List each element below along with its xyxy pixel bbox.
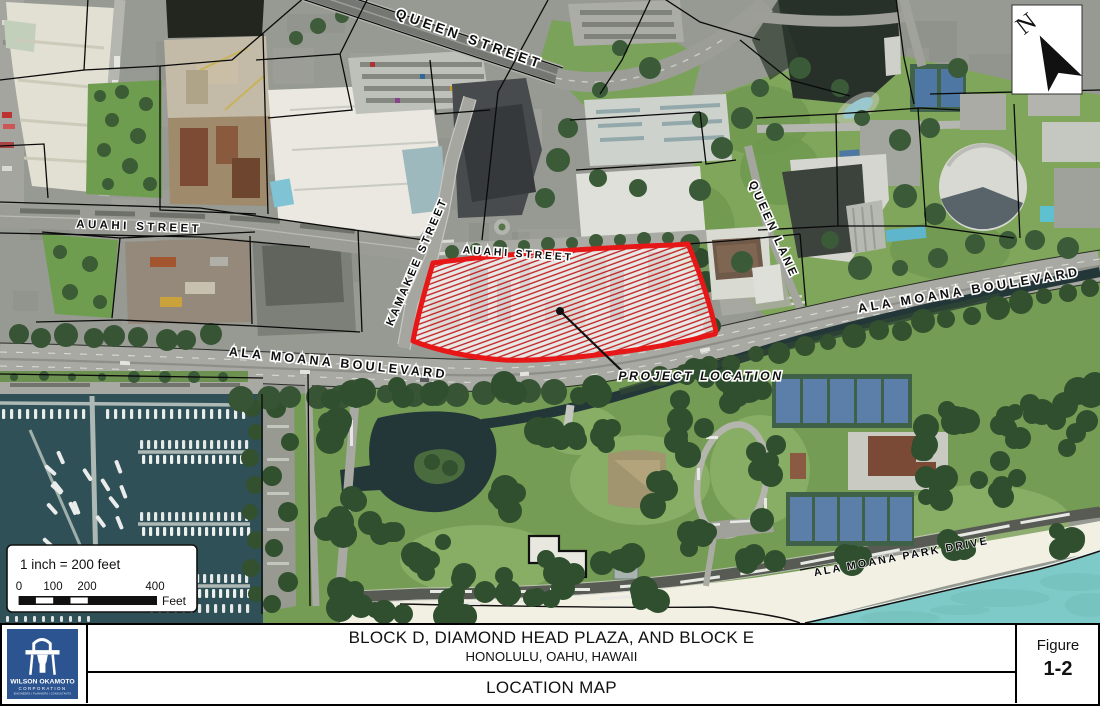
svg-text:400: 400 [145, 581, 164, 593]
svg-text:PROJECT LOCATION: PROJECT LOCATION [618, 369, 783, 383]
svg-text:100: 100 [43, 581, 62, 593]
svg-text:ENGINEERS | PLANNERS | CONSULT: ENGINEERS | PLANNERS | CONSULTANTS [14, 693, 72, 696]
svg-text:Feet: Feet [162, 594, 187, 608]
svg-text:CORPORATION: CORPORATION [19, 686, 67, 691]
svg-text:0: 0 [16, 581, 22, 593]
svg-text:200: 200 [77, 581, 96, 593]
svg-text:1 inch = 200 feet: 1 inch = 200 feet [20, 557, 120, 572]
svg-text:WILSON OKAMOTO: WILSON OKAMOTO [10, 678, 74, 685]
